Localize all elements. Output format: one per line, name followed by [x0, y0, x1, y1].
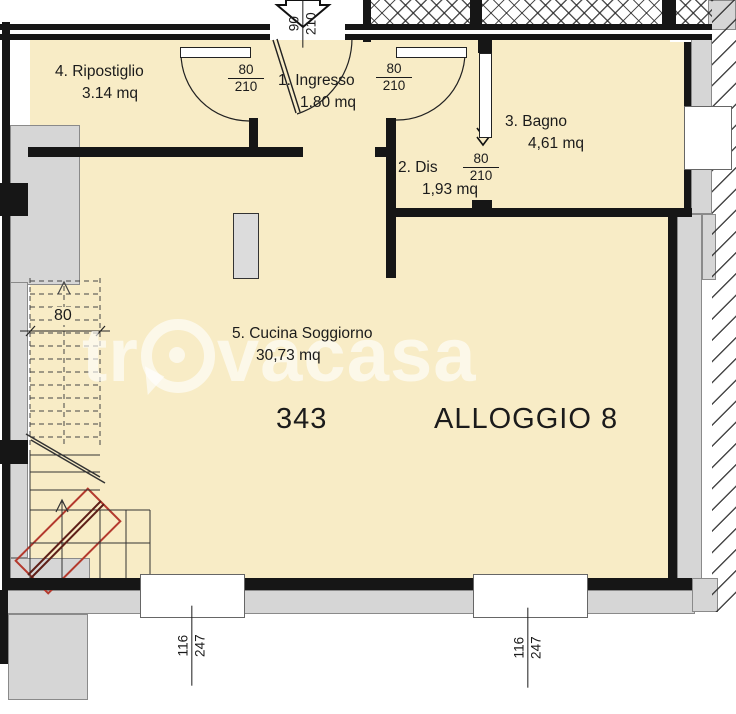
unit-code: 343	[276, 403, 327, 436]
wall-top-right	[345, 24, 712, 40]
wall-bagno-bottom	[386, 208, 692, 217]
dis-name: 2. Dis	[398, 159, 438, 176]
room-area-bagno: 4,61 mq	[528, 135, 584, 153]
room-label-dis: 2. Dis	[398, 159, 438, 177]
wall-bottom	[8, 578, 692, 590]
wall-corridor	[386, 118, 396, 278]
floor-plan: trvacasa 4. Ripostiglio 3.14 mq 1. Ingre…	[0, 0, 736, 714]
wall-bagno-left-top-stub	[478, 39, 492, 53]
watermark-house-pin-icon	[141, 319, 215, 393]
wall-cucina-right	[668, 214, 677, 580]
unit-name-text: ALLOGGIO 8	[434, 403, 618, 435]
dim-num: 116	[512, 608, 528, 688]
sliding-door-leaf-bagno	[479, 53, 492, 138]
dim-den: 210	[304, 0, 319, 48]
wall-left-outer	[2, 22, 10, 590]
room-area-ripostiglio: 3.14 mq	[82, 85, 138, 103]
door-leaf-corridor	[396, 47, 467, 58]
room-area-ingresso: 1.80 mq	[300, 94, 356, 112]
window-bagno-right	[684, 106, 732, 170]
cucina-area: 30,73 mq	[256, 347, 321, 364]
wall-stub-ripostiglio-door	[249, 118, 258, 148]
room-label-cucina: 5. Cucina Soggiorno	[232, 325, 372, 343]
dim-stairs-width: 80	[52, 307, 74, 325]
wall-ripostiglio-bottom	[28, 147, 303, 157]
dim-den: 210	[228, 79, 264, 94]
dim-door-bagno: 80 210	[463, 152, 499, 183]
ripostiglio-area: 3.14 mq	[82, 85, 138, 102]
dim-entrance-door: 90 210	[287, 0, 318, 48]
bagno-name: 3. Bagno	[505, 113, 567, 130]
bagno-area: 4,61 mq	[528, 135, 584, 152]
ripostiglio-name: 4. Ripostiglio	[55, 63, 144, 80]
dim-door-ripostiglio: 80 210	[228, 63, 264, 94]
dim-den: 210	[376, 78, 412, 93]
ingresso-area: 1.80 mq	[300, 94, 356, 111]
dim-num: 116	[176, 606, 192, 686]
door-leaf-ripostiglio	[180, 47, 251, 58]
wall-top-left	[0, 24, 270, 40]
dim-window-left: 116 247	[176, 606, 207, 686]
wall-left-junction-2	[0, 440, 28, 464]
stairs-width-text: 80	[54, 307, 72, 324]
room-label-ripostiglio: 4. Ripostiglio	[55, 63, 144, 81]
dis-area: 1,93 mq	[422, 181, 478, 198]
wall-bagno-left-bottom-stub	[478, 200, 492, 217]
dim-door-ingresso: 80 210	[376, 62, 412, 93]
ingresso-name: 1. Ingresso	[278, 72, 355, 89]
dim-window-right: 116 247	[512, 608, 543, 688]
room-label-ingresso: 1. Ingresso	[278, 72, 355, 90]
cucina-name: 5. Cucina Soggiorno	[232, 325, 372, 342]
wall-left-junction-1	[0, 183, 28, 216]
room-area-cucina: 30,73 mq	[256, 347, 321, 365]
dim-den: 210	[463, 168, 499, 183]
room-label-bagno: 3. Bagno	[505, 113, 567, 131]
room-area-dis: 1,93 mq	[422, 181, 478, 199]
dim-num: 90	[287, 0, 303, 48]
dim-den: 247	[529, 608, 544, 688]
unit-code-text: 343	[276, 403, 327, 435]
unit-name: ALLOGGIO 8	[434, 403, 618, 436]
watermark-text-left: tr	[82, 312, 139, 399]
dim-num: 80	[376, 62, 412, 78]
dim-den: 247	[193, 606, 208, 686]
wall-bottom-left-outer	[0, 590, 8, 664]
dim-num: 80	[228, 63, 264, 79]
dim-num: 80	[463, 152, 499, 168]
pin-dot	[169, 347, 185, 363]
